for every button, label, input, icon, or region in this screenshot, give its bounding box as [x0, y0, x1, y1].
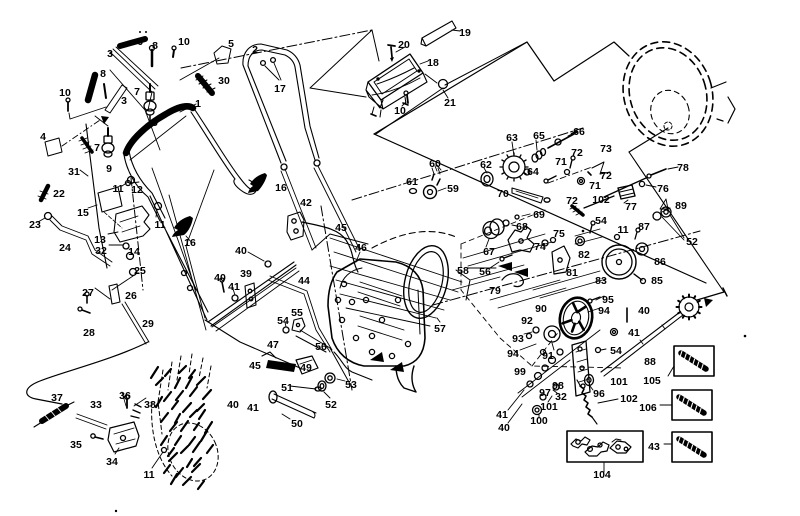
svg-text:72: 72 [600, 170, 612, 182]
svg-text:75: 75 [553, 228, 565, 240]
svg-text:7: 7 [94, 142, 100, 154]
svg-text:8: 8 [100, 68, 106, 80]
svg-text:33: 33 [90, 399, 102, 411]
svg-text:43: 43 [648, 441, 660, 453]
svg-text:53: 53 [345, 379, 357, 391]
svg-text:67: 67 [483, 246, 495, 258]
svg-text:99: 99 [514, 366, 526, 378]
svg-text:11: 11 [154, 219, 165, 231]
svg-text:39: 39 [240, 268, 252, 280]
svg-text:91: 91 [542, 350, 554, 362]
svg-text:77: 77 [625, 201, 637, 213]
svg-text:81: 81 [566, 267, 578, 279]
svg-text:17: 17 [274, 83, 286, 95]
svg-text:82: 82 [578, 249, 590, 261]
svg-text:56: 56 [315, 341, 327, 353]
svg-text:105: 105 [643, 375, 661, 387]
svg-text:69: 69 [533, 209, 545, 221]
svg-text:47: 47 [267, 339, 279, 351]
svg-text:76: 76 [657, 183, 669, 195]
svg-text:64: 64 [527, 166, 539, 178]
svg-text:46: 46 [355, 242, 367, 254]
svg-text:106: 106 [639, 402, 657, 414]
svg-text:72: 72 [566, 195, 578, 207]
svg-text:72: 72 [571, 147, 583, 159]
svg-text:73: 73 [600, 143, 612, 155]
svg-text:45: 45 [335, 222, 347, 234]
svg-text:55: 55 [291, 307, 303, 319]
svg-text:9: 9 [152, 117, 158, 129]
svg-text:93: 93 [512, 333, 524, 345]
svg-text:11: 11 [617, 224, 628, 236]
svg-text:59: 59 [447, 183, 459, 195]
svg-text:41: 41 [247, 402, 259, 414]
svg-text:49: 49 [300, 362, 312, 374]
svg-text:89: 89 [675, 200, 687, 212]
svg-text:35: 35 [70, 439, 82, 451]
svg-text:36: 36 [119, 390, 131, 402]
svg-text:94: 94 [598, 305, 610, 317]
svg-text:88: 88 [644, 356, 656, 368]
svg-text:92: 92 [521, 315, 533, 327]
svg-text:3: 3 [107, 48, 113, 60]
svg-text:44: 44 [298, 275, 310, 287]
svg-text:66: 66 [573, 126, 585, 138]
svg-text:31: 31 [68, 166, 80, 178]
svg-text:2: 2 [252, 44, 258, 56]
svg-text:11: 11 [112, 183, 123, 195]
svg-text:9: 9 [106, 163, 112, 175]
svg-text:26: 26 [125, 290, 137, 302]
svg-text:21: 21 [444, 97, 456, 109]
svg-text:102: 102 [620, 393, 638, 405]
svg-text:56: 56 [479, 266, 491, 278]
svg-text:41: 41 [228, 281, 240, 293]
svg-text:40: 40 [214, 272, 226, 284]
svg-text:58: 58 [457, 265, 469, 277]
svg-text:28: 28 [83, 327, 95, 339]
svg-text:25: 25 [134, 265, 146, 277]
svg-text:68: 68 [516, 221, 528, 233]
svg-text:79: 79 [489, 285, 501, 297]
svg-text:7: 7 [134, 86, 140, 98]
svg-text:83: 83 [595, 275, 607, 287]
svg-text:1: 1 [195, 98, 201, 110]
svg-text:23: 23 [29, 219, 41, 231]
svg-text:71: 71 [589, 180, 601, 192]
svg-text:19: 19 [459, 27, 471, 39]
svg-text:29: 29 [142, 318, 154, 330]
svg-text:70: 70 [497, 188, 509, 200]
svg-text:4: 4 [40, 131, 46, 143]
svg-text:62: 62 [480, 159, 492, 171]
svg-text:45: 45 [249, 360, 261, 372]
svg-text:22: 22 [53, 188, 65, 200]
svg-text:50: 50 [291, 418, 303, 430]
svg-text:85: 85 [651, 275, 663, 287]
svg-text:54: 54 [610, 345, 622, 357]
svg-text:86: 86 [654, 256, 666, 268]
svg-text:61: 61 [406, 176, 418, 188]
svg-text:52: 52 [686, 236, 698, 248]
svg-text:71: 71 [555, 156, 567, 168]
svg-text:40: 40 [235, 245, 247, 257]
svg-text:12: 12 [131, 184, 143, 196]
svg-text:14: 14 [128, 246, 140, 258]
svg-text:41: 41 [628, 327, 640, 339]
svg-text:40: 40 [227, 399, 239, 411]
svg-text:40: 40 [638, 305, 650, 317]
svg-text:94: 94 [507, 348, 519, 360]
svg-text:32: 32 [555, 391, 567, 403]
svg-text:15: 15 [77, 207, 89, 219]
svg-text:24: 24 [59, 242, 71, 254]
svg-text:96: 96 [593, 388, 605, 400]
svg-text:54: 54 [595, 215, 607, 227]
svg-text:11: 11 [143, 469, 154, 481]
svg-text:52: 52 [325, 399, 337, 411]
svg-text:3: 3 [121, 95, 127, 107]
svg-text:65: 65 [533, 130, 545, 142]
svg-text:87: 87 [638, 221, 650, 233]
svg-text:6: 6 [137, 36, 143, 48]
svg-text:40: 40 [498, 422, 510, 434]
svg-text:101: 101 [610, 376, 628, 388]
svg-text:54: 54 [277, 315, 289, 327]
svg-text:27: 27 [82, 287, 94, 299]
svg-text:78: 78 [677, 162, 689, 174]
svg-text:34: 34 [106, 456, 118, 468]
svg-text:10: 10 [178, 36, 190, 48]
svg-text:16: 16 [184, 237, 196, 249]
svg-text:10: 10 [394, 105, 406, 117]
svg-text:18: 18 [427, 57, 439, 69]
svg-text:37: 37 [51, 392, 63, 404]
svg-text:32: 32 [95, 245, 107, 257]
svg-text:42: 42 [300, 197, 312, 209]
svg-text:74: 74 [534, 241, 546, 253]
svg-text:10: 10 [59, 87, 71, 99]
svg-text:57: 57 [434, 323, 446, 335]
svg-text:63: 63 [506, 132, 518, 144]
svg-text:60: 60 [429, 158, 441, 170]
svg-text:16: 16 [275, 182, 287, 194]
svg-text:104: 104 [593, 469, 611, 481]
svg-text:97: 97 [539, 387, 551, 399]
svg-text:5: 5 [228, 38, 234, 50]
svg-text:20: 20 [398, 39, 410, 51]
svg-text:51: 51 [281, 382, 293, 394]
svg-text:30: 30 [218, 75, 230, 87]
svg-text:100: 100 [530, 415, 548, 427]
svg-text:102: 102 [592, 194, 610, 206]
svg-text:8: 8 [152, 40, 158, 52]
svg-text:90: 90 [535, 303, 547, 315]
svg-text:38: 38 [144, 399, 156, 411]
svg-text:41: 41 [496, 409, 508, 421]
